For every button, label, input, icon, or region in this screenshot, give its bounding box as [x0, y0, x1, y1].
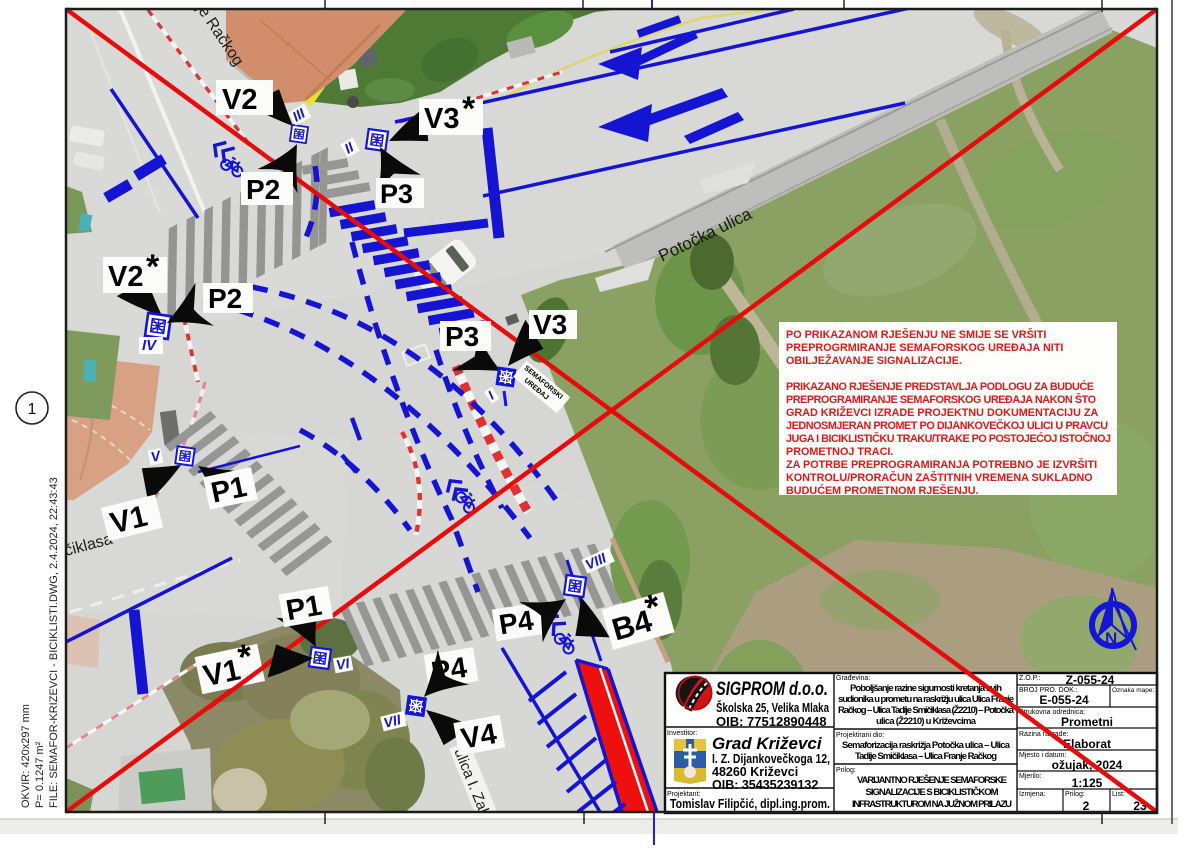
- svg-text:JEDNOSMJERAN PROMET PO DIJANKO: JEDNOSMJERAN PROMET PO DIJANKOVEČKOJ ULI…: [786, 419, 1108, 432]
- svg-text:V2: V2: [222, 84, 257, 116]
- svg-text:Investitor:: Investitor:: [667, 730, 697, 737]
- svg-text:PREPROGRMIRANJE SEMAFORSKOG UR: PREPROGRMIRANJE SEMAFORSKOG UREĐAJA NITI: [786, 342, 1063, 354]
- svg-text:P2: P2: [208, 283, 242, 314]
- svg-text:P3: P3: [445, 321, 479, 352]
- svg-text:SIGNALIZACIJE S BICIKLISTIČKOM: SIGNALIZACIJE S BICIKLISTIČKOM: [866, 786, 999, 798]
- svg-text:Tadije Smičiklasa – Ulica Fra: Tadije Smičiklasa – Ulica Franje Račkog: [855, 751, 997, 762]
- svg-text:P3: P3: [380, 179, 413, 209]
- svg-text:V3: V3: [424, 103, 459, 135]
- svg-text:48260 Križevci: 48260 Križevci: [712, 765, 798, 779]
- svg-text:Prilog:: Prilog:: [836, 767, 856, 774]
- svg-text:OIB: 35435239132: OIB: 35435239132: [712, 778, 818, 792]
- svg-text:*: *: [462, 90, 476, 128]
- svg-text:*: *: [146, 248, 160, 286]
- svg-text:Školska 25, Velika Mlaka: Školska 25, Velika Mlaka: [716, 700, 830, 715]
- svg-text:KONTROLU/PRORAČUN ZAŠTITNIH VR: KONTROLU/PRORAČUN ZAŠTITNIH VREMENA SUKL…: [786, 471, 1093, 484]
- svg-text:OKVIR: 420x297 mm: OKVIR: 420x297 mm: [20, 704, 32, 808]
- svg-text:List:: List:: [1112, 791, 1125, 798]
- svg-text:P= 0.1247 m²: P= 0.1247 m²: [34, 741, 46, 808]
- svg-text:P4: P4: [497, 604, 536, 640]
- svg-text:Z-055-24: Z-055-24: [1066, 673, 1115, 687]
- svg-text:E-055-24: E-055-24: [1039, 693, 1089, 707]
- svg-text:ulica (Ž2210) u Križevcima: ulica (Ž2210) u Križevcima: [876, 715, 977, 727]
- svg-text:Mjerilo:: Mjerilo:: [1019, 773, 1042, 780]
- svg-text:Semaforizacija raskrižja Potoč: Semaforizacija raskrižja Potočka ulica –…: [842, 740, 1011, 751]
- svg-text:Račkog – Ulica Tadije Smičikla: Račkog – Ulica Tadije Smičiklasa (Ž2210)…: [838, 704, 1015, 716]
- svg-text:Prilog:: Prilog:: [1065, 791, 1085, 798]
- svg-text:PRIKAZANO RJEŠENJE PREDSTAVLJA: PRIKAZANO RJEŠENJE PREDSTAVLJA PODLOGU Z…: [786, 380, 1094, 393]
- svg-text:Izmjena:: Izmjena:: [1019, 791, 1046, 798]
- svg-text:FILE: SEMAFOR-KRIZEVCI - BICIK: FILE: SEMAFOR-KRIZEVCI - BICIKLISTI.DWG,…: [48, 477, 60, 808]
- svg-text:JUGA I BICIKLISTIČKU TRAKU/TRA: JUGA I BICIKLISTIČKU TRAKU/TRAKE PO POST…: [786, 432, 1111, 445]
- svg-text:Projektirani dio:: Projektirani dio:: [836, 732, 884, 739]
- svg-text:OBILJEŽAVANJE SIGNALIZACIJE.: OBILJEŽAVANJE SIGNALIZACIJE.: [786, 354, 962, 367]
- svg-text:Oznaka mape:: Oznaka mape:: [1112, 687, 1154, 694]
- svg-text:OIB: 77512890448: OIB: 77512890448: [716, 714, 827, 729]
- svg-text:VARIJANTNO RJEŠENJE SEMAFORSKE: VARIJANTNO RJEŠENJE SEMAFORSKE: [857, 774, 1007, 786]
- svg-text:Prometni: Prometni: [1061, 715, 1113, 729]
- svg-text:SIGPROM d.o.o.: SIGPROM d.o.o.: [716, 679, 828, 700]
- svg-text:PO PRIKAZANOM RJEŠENJU NE SMIJ: PO PRIKAZANOM RJEŠENJU NE SMIJE SE VRŠIT…: [786, 328, 1046, 341]
- svg-text:PREPROGRAMIRANJE SEMAFORSKOG U: PREPROGRAMIRANJE SEMAFORSKOG UREĐAJA NAK…: [786, 393, 1096, 406]
- svg-text:Grad Križevci: Grad Križevci: [712, 734, 823, 753]
- svg-text:Z.O.P.:: Z.O.P.:: [1019, 675, 1040, 682]
- svg-text:INFRASTRUKTUROM NA JUŽNOM PRIL: INFRASTRUKTUROM NA JUŽNOM PRILAZU: [852, 798, 1012, 810]
- svg-text:Razina razrade:: Razina razrade:: [1019, 731, 1068, 738]
- svg-text:V2: V2: [108, 261, 143, 293]
- svg-text:I. Z. Dijankovečkoga 12,: I. Z. Dijankovečkoga 12,: [712, 752, 830, 766]
- svg-text:1:125: 1:125: [1072, 776, 1103, 790]
- svg-text:V3: V3: [533, 309, 567, 340]
- svg-text:GRAD KRIŽEVCI IZRADE PROJEKTNU: GRAD KRIŽEVCI IZRADE PROJEKTNU DOKUMENTA…: [786, 406, 1099, 419]
- svg-text:BUDUĆEM PROMETNOM RJEŠENJU.: BUDUĆEM PROMETNOM RJEŠENJU.: [786, 484, 979, 497]
- svg-text:sudionika u prometu na raskriž: sudionika u prometu na raskrižju ulica U…: [838, 694, 1014, 705]
- svg-text:P2: P2: [246, 174, 280, 205]
- svg-text:PROMETNOJ TRACI.: PROMETNOJ TRACI.: [786, 446, 893, 458]
- svg-text:Tomislav Filipčić, dipl.ing.pr: Tomislav Filipčić, dipl.ing.prom.: [670, 796, 830, 811]
- svg-text:Poboljšanje razine sigurnosti: Poboljšanje razine sigurnosti kretanja s…: [850, 683, 1002, 694]
- svg-text:ZA POTRBE PREPROGRAMIRANJA POT: ZA POTRBE PREPROGRAMIRANJA POTREBNO JE I…: [786, 458, 1097, 471]
- svg-text:1: 1: [28, 401, 37, 418]
- svg-text:P1: P1: [284, 590, 325, 628]
- svg-text:N: N: [1105, 629, 1117, 648]
- svg-text:Građevina:: Građevina:: [836, 675, 870, 682]
- svg-text:IV: IV: [142, 337, 158, 354]
- svg-text:V4: V4: [459, 718, 500, 756]
